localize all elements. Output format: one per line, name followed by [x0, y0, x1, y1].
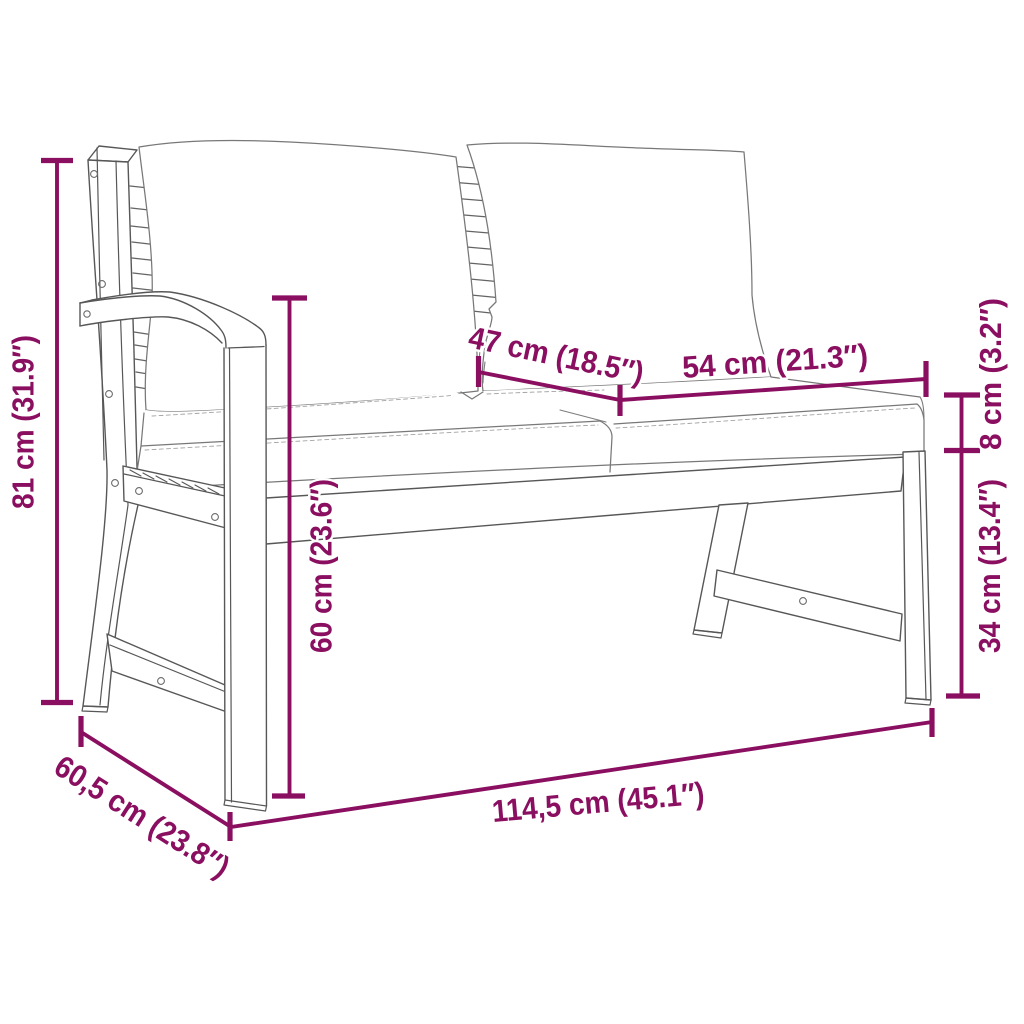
svg-text:81 cm (31.9″): 81 cm (31.9″)	[6, 335, 41, 509]
svg-text:60 cm (23.6″): 60 cm (23.6″)	[304, 479, 339, 653]
svg-text:34 cm (13.4″): 34 cm (13.4″)	[972, 479, 1007, 653]
svg-text:8 cm (3.2″): 8 cm (3.2″)	[973, 298, 1008, 450]
